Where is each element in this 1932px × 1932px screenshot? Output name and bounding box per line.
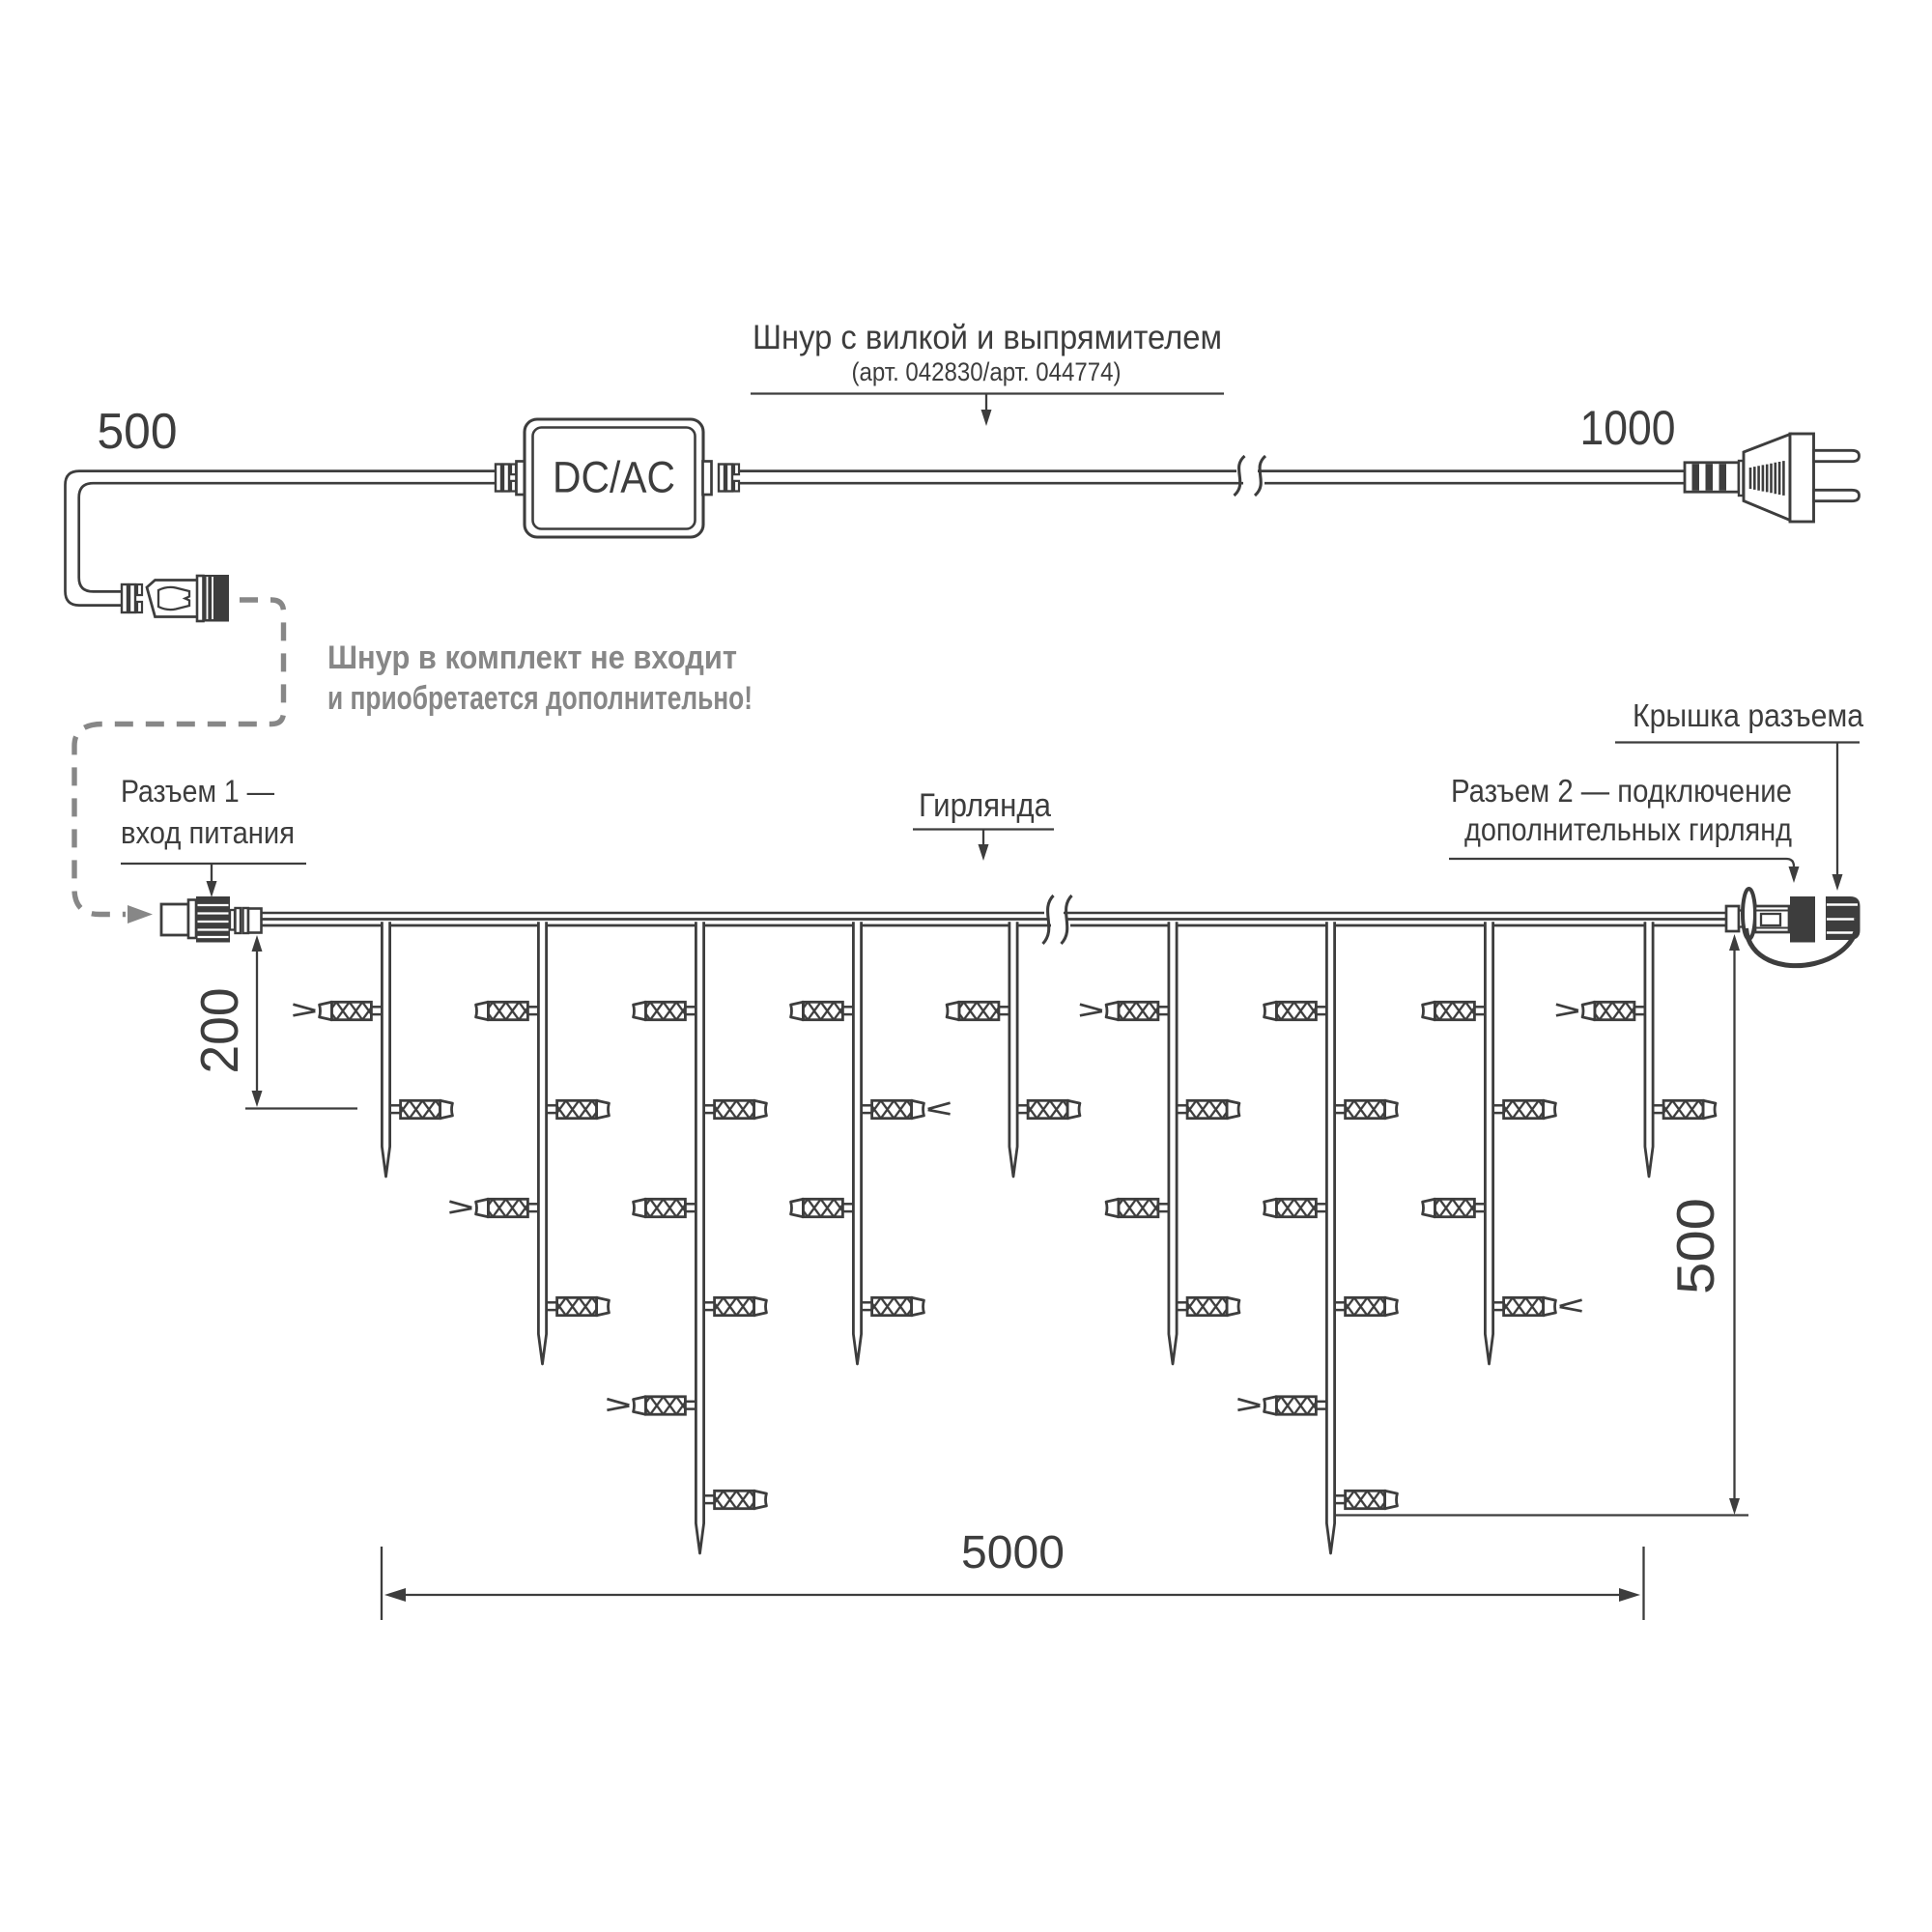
svg-text:200: 200 xyxy=(189,988,249,1074)
svg-text:и приобретается дополнительно!: и приобретается дополнительно! xyxy=(327,680,753,717)
svg-text:500: 500 xyxy=(98,404,178,460)
svg-text:DC/AC: DC/AC xyxy=(553,453,675,502)
svg-text:500: 500 xyxy=(1665,1198,1725,1294)
svg-text:Разъем 2 — подключение: Разъем 2 — подключение xyxy=(1451,773,1792,809)
svg-text:Разъем 1 —: Разъем 1 — xyxy=(121,774,274,809)
svg-text:Шнур в комплект не входит: Шнур в комплект не входит xyxy=(327,639,737,676)
svg-text:Шнур с вилкой и выпрямителем: Шнур с вилкой и выпрямителем xyxy=(753,319,1222,356)
svg-text:1000: 1000 xyxy=(1580,401,1676,455)
svg-text:5000: 5000 xyxy=(961,1527,1065,1578)
svg-text:Гирлянда: Гирлянда xyxy=(919,787,1051,824)
svg-text:Крышка разъема: Крышка разъема xyxy=(1633,697,1864,733)
svg-text:вход питания: вход питания xyxy=(121,815,295,850)
svg-text:дополнительных гирлянд: дополнительных гирлянд xyxy=(1464,811,1792,847)
svg-text:(арт. 042830/арт. 044774): (арт. 042830/арт. 044774) xyxy=(852,357,1122,386)
